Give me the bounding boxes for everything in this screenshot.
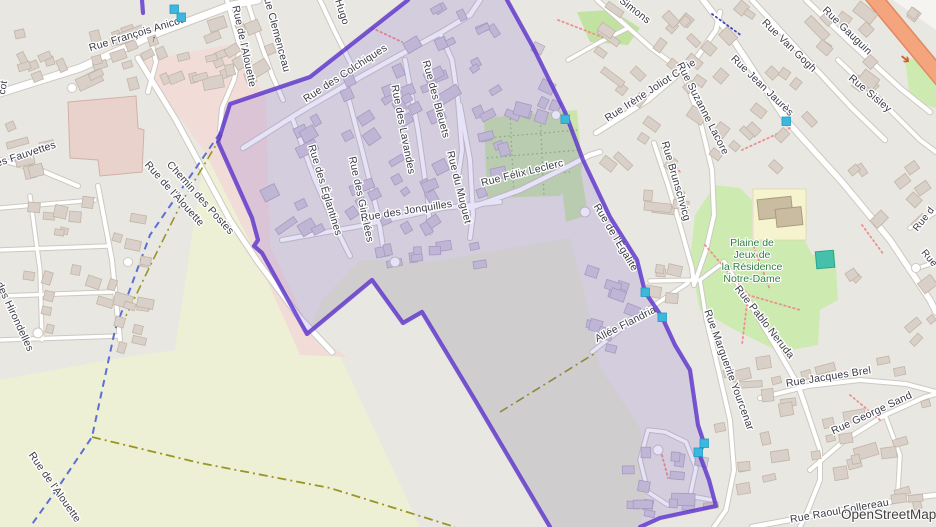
building	[771, 376, 781, 385]
osm-attribution-link[interactable]: OpenStreetMap	[841, 507, 936, 522]
building	[23, 271, 35, 281]
building	[770, 449, 789, 462]
map-node-1[interactable]	[177, 13, 186, 22]
park-label-line: Notre-Dame	[723, 273, 780, 285]
boundary-fragment	[142, 0, 143, 13]
building	[738, 461, 751, 471]
building	[665, 293, 678, 304]
building	[921, 399, 931, 408]
building	[71, 264, 82, 275]
building	[132, 324, 143, 335]
park-label-line: Plaine de	[730, 237, 774, 249]
building	[908, 494, 923, 502]
building	[54, 229, 64, 236]
building	[82, 196, 94, 208]
building	[45, 324, 54, 334]
building	[14, 29, 25, 39]
building	[714, 422, 726, 432]
map-node-0[interactable]	[170, 5, 179, 14]
building	[891, 493, 907, 504]
building	[655, 264, 664, 274]
map-node-6[interactable]	[694, 448, 703, 457]
park-label-line: la Résidence	[722, 261, 783, 273]
building	[881, 446, 897, 458]
building	[833, 466, 848, 481]
building	[140, 256, 152, 266]
building	[756, 355, 772, 369]
map-node-5[interactable]	[700, 439, 709, 448]
building	[643, 190, 652, 201]
building	[28, 202, 41, 213]
building	[811, 450, 821, 460]
map-node-7[interactable]	[782, 117, 791, 126]
building	[69, 211, 82, 223]
building	[778, 402, 794, 417]
map-canvas[interactable]: Rue François AnicotcotRue de l'AlouetteR…	[0, 0, 936, 527]
building	[53, 204, 68, 219]
map-node-3[interactable]	[641, 288, 650, 297]
map-node-2[interactable]	[561, 115, 570, 124]
building	[43, 290, 55, 302]
park-label-line: Jeux de	[734, 249, 771, 261]
building	[761, 388, 774, 401]
building	[41, 306, 52, 316]
sports-building	[815, 250, 834, 269]
building	[893, 366, 905, 376]
building	[736, 482, 751, 495]
map-node-4[interactable]	[658, 313, 667, 322]
building	[851, 454, 860, 464]
building	[91, 55, 102, 66]
building	[28, 163, 44, 178]
map-svg[interactable]: Rue François AnicotcotRue de l'AlouetteR…	[0, 0, 936, 527]
